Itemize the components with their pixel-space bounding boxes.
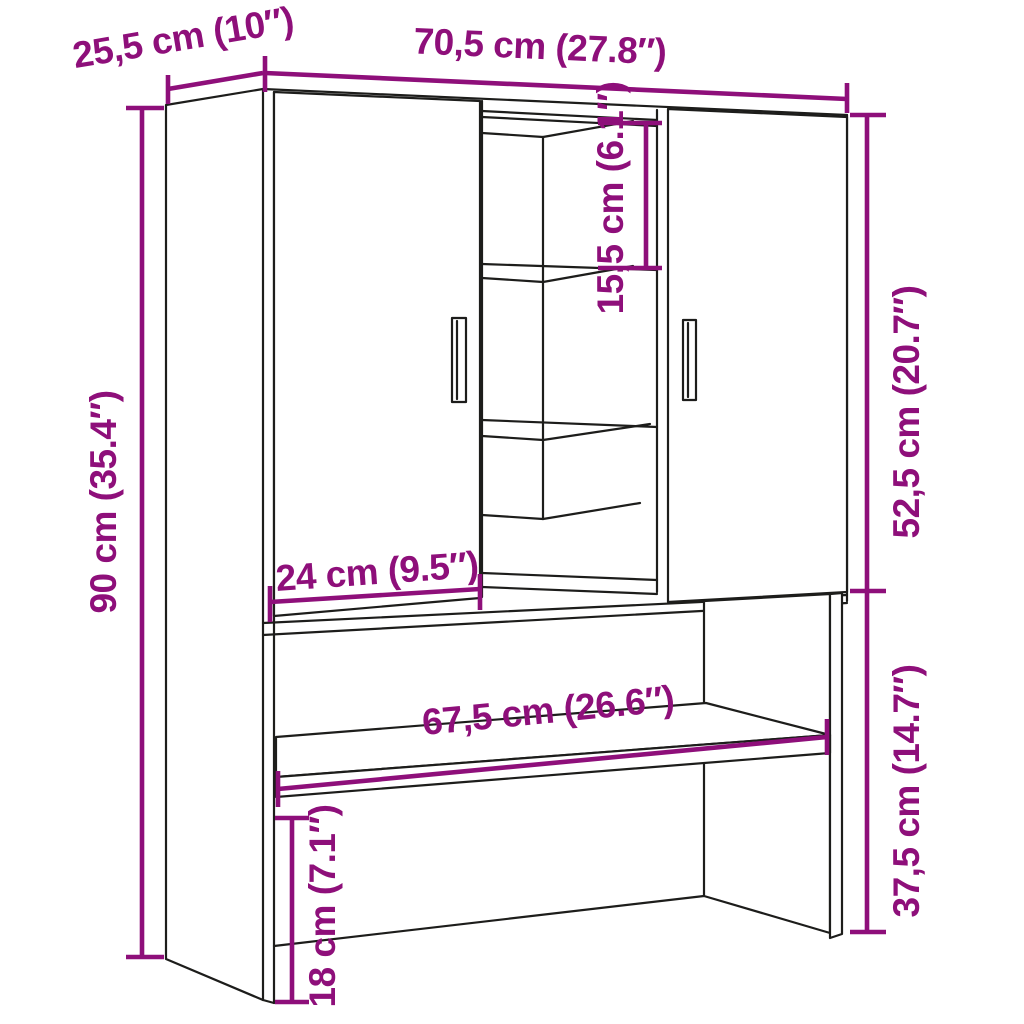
cabinet-drawing bbox=[166, 89, 847, 1003]
dimension-height-left: 90 cm (35.4″) bbox=[83, 108, 164, 957]
left-panel-front-bottom bbox=[263, 1000, 274, 1003]
right-door-handle bbox=[683, 320, 696, 400]
dimension-label-upper-right: 52,5 cm (20.7″) bbox=[886, 286, 927, 539]
middle-divider-bottom-depth bbox=[543, 503, 640, 519]
middle-bottom-front bbox=[482, 587, 657, 594]
middle-shelf1-front bbox=[482, 278, 543, 282]
right-support-inner-face bbox=[704, 594, 830, 933]
left-door-handle bbox=[452, 318, 466, 402]
dimension-label-base-height: 18 cm (7.1″) bbox=[302, 805, 343, 1008]
middle-shelf2-depth bbox=[543, 424, 650, 440]
dimension-upper-right: 52,5 cm (20.7″) bbox=[850, 115, 927, 591]
dimension-label-lower-right: 37,5 cm (14.7″) bbox=[886, 665, 927, 918]
middle-bottom-back bbox=[482, 573, 657, 580]
right-support-front-edge bbox=[830, 593, 842, 938]
dimension-label-height-left: 90 cm (35.4″) bbox=[83, 390, 124, 613]
cabinet-dimension-diagram: 70,5 cm (27.8″) 25,5 cm (10″) 90 cm (35.… bbox=[0, 0, 1024, 1024]
dimension-label-width-top: 70,5 cm (27.8″) bbox=[413, 20, 667, 72]
diagram-stage: 70,5 cm (27.8″) 25,5 cm (10″) 90 cm (35.… bbox=[0, 0, 1024, 1024]
middle-top-front bbox=[482, 133, 543, 137]
left-door bbox=[274, 92, 480, 616]
dimension-lower-right: 37,5 cm (14.7″) bbox=[850, 591, 927, 932]
dimension-label-depth-top: 25,5 cm (10″) bbox=[70, 0, 297, 76]
middle-shelf2-front bbox=[482, 436, 543, 440]
dimension-inner-shelf: 15,5 cm (6.1″) bbox=[590, 82, 662, 315]
dimension-base-height: 18 cm (7.1″) bbox=[275, 805, 343, 1008]
left-side-panel bbox=[166, 89, 263, 1000]
middle-divider-bottom-front bbox=[482, 515, 543, 519]
dimension-label-inner-shelf: 15,5 cm (6.1″) bbox=[590, 82, 631, 315]
